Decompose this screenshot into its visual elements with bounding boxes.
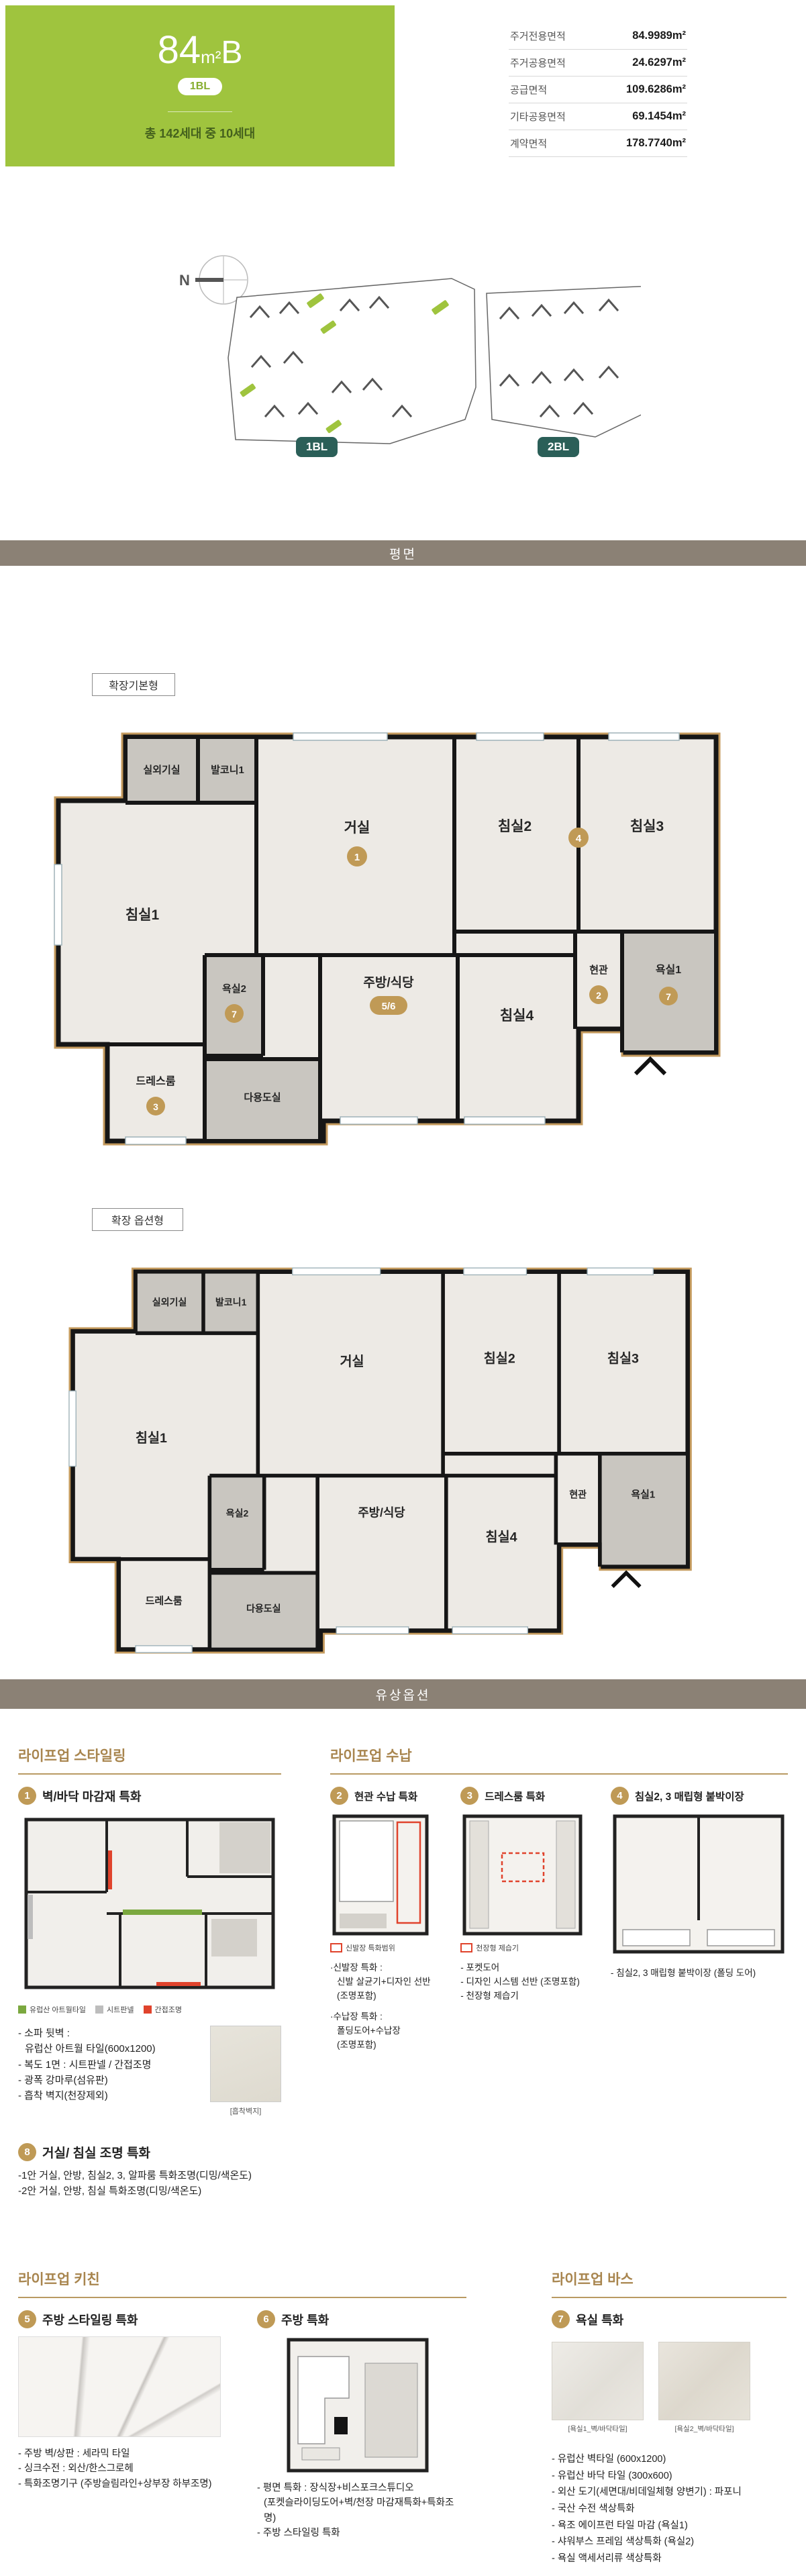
block-badge: 1BL (178, 78, 222, 95)
bullet: - 특화조명기구 (주방슬림라인+상부장 하부조명) (18, 2477, 219, 2491)
item3-legend: 천장형 제습기 (460, 1942, 592, 1953)
item5-head: 5 주방 스타일링 특화 (18, 2310, 219, 2328)
bullet: ·수납장 특화 : (330, 2010, 442, 2024)
unit-size-unit: m² (201, 47, 221, 67)
item5-title: 주방 스타일링 특화 (42, 2311, 138, 2328)
room-label-bed3: 침실3 (607, 1351, 639, 1366)
unit-size-number: 84 (158, 28, 201, 72)
unit-type-card: 84m²B 1BL 총 142세대 중 10세대 (5, 5, 395, 166)
badge-kitchen-num: 5/6 (382, 1001, 396, 1012)
item5-bullets: - 주방 벽/상판 : 세라믹 타일 - 싱크수전 : 외산/한스그로헤 - 특… (18, 2446, 219, 2491)
kitchen-header: 라이프업 키친 (18, 2269, 466, 2289)
site-plan: N (164, 218, 641, 466)
bullet: - 흡착 벽지(천장제외) (18, 2088, 202, 2103)
area-value: 24.6297m² (632, 56, 686, 69)
brochure-page: 84m²B 1BL 총 142세대 중 10세대 주거전용면적 84.9989m… (0, 0, 806, 2576)
legend-artwall-label: 유럽산 아트월타일 (30, 2004, 86, 2015)
section-bar-paid-options-label: 유상옵션 (376, 1685, 431, 1703)
room-label-bed3: 침실3 (630, 819, 664, 834)
bullet: 신발 살균기+디자인 선반 (330, 1975, 442, 1989)
item2-legend-label: 신발장 특화범위 (346, 1942, 395, 1953)
item8-number-badge: 8 (18, 2143, 36, 2161)
bullet: - 욕실 액세서리류 색상특화 (552, 2550, 787, 2567)
badge-bath2-num: 7 (232, 1009, 237, 1020)
stove (334, 2417, 348, 2434)
item2-head: 2 현관 수납 특화 (330, 1787, 442, 1805)
bullet: - 유럽산 바닥 타일 (300x600) (552, 2468, 787, 2485)
item8-lines: -1안 거실, 안방, 침실2, 3, 알파룸 특화조명(디밍/색온도) -2안… (18, 2168, 367, 2199)
room-label-bed4: 침실4 (500, 1008, 534, 1024)
badge-entrance-num: 2 (596, 990, 601, 1001)
legend-indirectlight-label: 간접조명 (155, 2004, 182, 2015)
wallpaper-swatch-image (210, 2026, 281, 2102)
storage-header: 라이프업 수납 (330, 1745, 788, 1765)
closet-left (623, 1930, 690, 1946)
area-value: 84.9989m² (632, 30, 686, 42)
area-value: 69.1454m² (632, 110, 686, 123)
section-bar-paid-options: 유상옵션 (0, 1679, 806, 1709)
bullet: 유럽산 아트월 타일(600x1200) (18, 2041, 202, 2057)
room-label-outdoor-unit: 실외기실 (143, 764, 180, 776)
bullet: ·신발장 특화 : (330, 1961, 442, 1975)
storage-item2-card: 2 현관 수납 특화 신발장 특화범위 ·신발장 특화 : 신발 살균기+디자인… (330, 1787, 442, 2052)
red-range-icon (330, 1943, 342, 1952)
storage-item4-card: 4 침실2, 3 매립형 붙박이장 - 침실2, 3 매립형 붙박이장 (폴딩 … (611, 1787, 788, 1981)
badge-bath1-num: 7 (666, 991, 671, 1002)
area-label: 계약면적 (510, 136, 547, 150)
indirect-light-highlight (108, 1850, 112, 1889)
entry-arrow (613, 1573, 640, 1587)
entrance-storage-image (330, 1813, 431, 1937)
item3-title: 드레스룸 특화 (485, 1789, 545, 1803)
room-label-entrance: 현관 (589, 964, 608, 976)
room-label-dress: 드레스룸 (146, 1595, 183, 1607)
item7-title: 욕실 특화 (576, 2311, 623, 2328)
item6-number-badge: 6 (257, 2310, 275, 2328)
item3-legend-label: 천장형 제습기 (476, 1942, 519, 1953)
item3-number-badge: 3 (460, 1787, 478, 1805)
bullet: - 주방 벽/상판 : 세라믹 타일 (18, 2446, 219, 2461)
room-label-entrance: 현관 (569, 1489, 587, 1499)
item2-number-badge: 2 (330, 1787, 348, 1805)
item5-number-badge: 5 (18, 2310, 36, 2328)
area-value: 109.6286m² (626, 83, 686, 96)
bullet: (조명포함) (330, 1989, 442, 2003)
item7-bullets: - 유럽산 벽타일 (600x1200) - 유럽산 바닥 타일 (300x60… (552, 2451, 787, 2567)
bullet: - 침실2, 3 매립형 붙박이장 (폴딩 도어) (611, 1967, 788, 1981)
item3-bullets: - 포켓도어 - 디자인 시스템 선반 (조명포함) - 천장형 제습기 (460, 1961, 592, 2003)
lifeup-styling-section: 라이프업 스타일링 1 벽/바닥 마감재 특화 유럽산 아트월타일 시트판넬 (18, 1745, 281, 2199)
area-label: 기타공용면적 (510, 109, 566, 123)
styling-plan-image (18, 1813, 281, 1995)
indirect-light-highlight2 (156, 1982, 201, 1986)
room-label-bed2: 침실2 (498, 819, 532, 834)
room-label-bed4: 침실4 (486, 1530, 517, 1545)
legend-sheetpanel-label: 시트판넬 (107, 2004, 134, 2015)
item3-head: 3 드레스룸 특화 (460, 1787, 592, 1805)
hero-divider (168, 111, 232, 112)
lifeup-storage-section: 라이프업 수납 2 현관 수납 특화 신발장 특화범위 (330, 1745, 788, 2052)
bath1-tile-figure: [욕실1_벽/바닥타일] (552, 2342, 644, 2434)
bullet: - 포켓도어 (460, 1961, 592, 1975)
area-label: 주거공용면적 (510, 56, 566, 70)
bullet: - 국산 수전 색상특화 (552, 2501, 787, 2518)
entry-arrow (636, 1059, 665, 1074)
room-label-kitchen: 주방/식당 (358, 1505, 405, 1519)
legend-artwall: 유럽산 아트월타일 (18, 2004, 86, 2015)
bullet: 폴딩도어+수납장 (330, 2024, 442, 2038)
bullet: - 소파 뒷벽 : (18, 2026, 202, 2041)
dressroom-image (460, 1813, 585, 1937)
kitchen-item5-card: 5 주방 스타일링 특화 - 주방 벽/상판 : 세라믹 타일 - 싱크수전 :… (18, 2310, 219, 2491)
item4-title: 침실2, 3 매립형 붙박이장 (635, 1789, 744, 1803)
room-label-utility: 다용도실 (244, 1092, 281, 1103)
legend-sheetpanel: 시트판넬 (95, 2004, 134, 2015)
site-plan-map: N (164, 218, 641, 460)
red-range-icon (460, 1943, 472, 1952)
plan-b-label: 확장 옵션형 (92, 1208, 183, 1231)
floor-plan-extended-option: 실외기실 발코니1 침실1 거실 침실2 침실3 욕실1 현관 주방/식당 침실… (57, 1240, 735, 1658)
item4-bullets: - 침실2, 3 매립형 붙박이장 (폴딩 도어) (611, 1967, 788, 1981)
badge-dress-num: 3 (153, 1101, 158, 1112)
bath2-tile-figure: [욕실2_벽/바닥타일] (658, 2342, 750, 2434)
item6-title: 주방 특화 (281, 2311, 329, 2328)
bullet: - 평면 특화 : 장식장+비스포크스튜디오 (257, 2481, 458, 2495)
bath2-tile-caption: [욕실2_벽/바닥타일] (658, 2424, 750, 2434)
sheet-panel-highlight (28, 1895, 33, 1939)
unit-size-title: 84m²B (158, 31, 243, 70)
item1-head: 1 벽/바닥 마감재 특화 (18, 1787, 281, 1805)
room-label-outdoor-unit: 실외기실 (152, 1297, 187, 1307)
builtin-closet-image (611, 1813, 787, 1957)
storage-header-rule (330, 1773, 788, 1775)
legend-artwall-swatch (18, 2005, 26, 2014)
artwall-tile-highlight (123, 1910, 202, 1915)
bath1-tile-caption: [욕실1_벽/바닥타일] (552, 2424, 644, 2434)
bullet: - 복도 1면 : 시트판넬 / 간접조명 (18, 2057, 202, 2073)
area-label: 공급면적 (510, 83, 547, 97)
styling-detail: - 소파 뒷벽 : 유럽산 아트월 타일(600x1200) - 복도 1면 :… (18, 2026, 281, 2116)
kitchen-header-rule (18, 2297, 466, 2298)
bath2-tile-image (658, 2342, 750, 2420)
styling-header-rule (18, 1773, 281, 1775)
floor-plan-extended-basic: 실외기실 발코니1 침실1 거실 1 침실2 4 침실3 욕실1 7 현관 2 … (42, 703, 766, 1150)
room-label-bath1: 욕실1 (656, 964, 681, 976)
bullet: - 욕조 에이프런 타일 마감 (욕실1) (552, 2518, 787, 2534)
bath1-tile-image (552, 2342, 644, 2420)
table-row: 기타공용면적 69.1454m² (509, 103, 687, 130)
bullet: (포켓슬라이딩도어+벽/천장 마감재특화+특화조명) (257, 2495, 458, 2526)
item7-number-badge: 7 (552, 2310, 570, 2328)
room-label-utility: 다용도실 (246, 1603, 281, 1614)
floor-plan-b-svg: 실외기실 발코니1 침실1 거실 침실2 침실3 욕실1 현관 주방/식당 침실… (57, 1240, 735, 1654)
storage-item3-card: 3 드레스룸 특화 천장형 제습기 - 포켓도어 - 디자인 시스템 선반 (조… (460, 1787, 592, 2003)
bullet: - 외산 도기(세면대/비데일체형 양변기) : 파포니 (552, 2484, 787, 2501)
bullet: -1안 거실, 안방, 침실2, 3, 알파룸 특화조명(디밍/색온도) (18, 2168, 367, 2183)
table-row: 공급면적 109.6286m² (509, 77, 687, 103)
bath-swatches: [욕실1_벽/바닥타일] [욕실2_벽/바닥타일] (552, 2342, 787, 2434)
room-label-living: 거실 (344, 820, 370, 836)
item2-details: ·신발장 특화 : 신발 살균기+디자인 선반 (조명포함) ·수납장 특화 :… (330, 1961, 442, 2052)
table-row: 주거공용면적 24.6297m² (509, 50, 687, 77)
styling-bullets: - 소파 뒷벽 : 유럽산 아트월 타일(600x1200) - 복도 1면 :… (18, 2026, 202, 2116)
floor-plan-a-svg: 실외기실 발코니1 침실1 거실 1 침실2 4 침실3 욕실1 7 현관 2 … (42, 703, 766, 1146)
closet-right (707, 1930, 774, 1946)
room-label-bath1: 욕실1 (631, 1489, 655, 1500)
styling-legend: 유럽산 아트월타일 시트판넬 간접조명 (18, 2004, 281, 2015)
room-label-bed1: 침실1 (125, 907, 160, 923)
item8-head: 8 거실/ 침실 조명 특화 (18, 2143, 281, 2161)
table-row: 계약면적 178.7740m² (509, 130, 687, 157)
wallpaper-swatch-figure: [흡착벽지] (210, 2026, 281, 2116)
bullet: (조명포함) (330, 2038, 442, 2052)
item8-title: 거실/ 침실 조명 특화 (42, 2143, 150, 2161)
legend-indirectlight: 간접조명 (144, 2004, 182, 2015)
bullet: -2안 거실, 안방, 침실 특화조명(디밍/색온도) (18, 2183, 367, 2199)
area-label: 주거전용면적 (510, 29, 566, 43)
area-value: 178.7740m² (626, 137, 686, 150)
room-label-bath2: 욕실2 (222, 983, 246, 995)
item7-head: 7 욕실 특화 (552, 2310, 787, 2328)
room-label-living: 거실 (340, 1354, 364, 1369)
styling-header: 라이프업 스타일링 (18, 1745, 281, 1765)
bullet: - 싱크수전 : 외산/한스그로헤 (18, 2461, 219, 2476)
item1-title: 벽/바닥 마감재 특화 (42, 1787, 141, 1805)
lifeup-kitchen-section: 라이프업 키친 5 주방 스타일링 특화 - 주방 벽/상판 : 세라믹 타일 … (18, 2269, 466, 2541)
bullet: - 광폭 강마루(섬유판) (18, 2073, 202, 2088)
block1-badge: 1BL (296, 437, 338, 457)
item2-title: 현관 수납 특화 (354, 1789, 417, 1803)
kitchen-item6-card: 6 주방 특화 - 평면 특화 : 장식장+비스포크스튜디오 (포켓슬라이딩도어… (257, 2310, 458, 2541)
badge-living-num: 1 (354, 852, 360, 863)
room-label-bath2: 욕실2 (226, 1507, 249, 1518)
badge-bed23-num: 4 (576, 833, 582, 844)
room-label-balcony: 발코니1 (215, 1297, 247, 1307)
section-bar-plan: 평면 (0, 540, 806, 566)
block2-badge: 2BL (538, 437, 579, 457)
bath-header: 라이프업 바스 (552, 2269, 787, 2289)
item4-head: 4 침실2, 3 매립형 붙박이장 (611, 1787, 788, 1805)
unit-size-type: B (221, 35, 242, 70)
bullet: - 천장형 제습기 (460, 1989, 592, 2003)
room-label-balcony: 발코니1 (211, 764, 244, 776)
bullet: - 주방 스타일링 특화 (257, 2526, 458, 2540)
bullet: - 유럽산 벽타일 (600x1200) (552, 2451, 787, 2468)
item6-head: 6 주방 특화 (257, 2310, 458, 2328)
bullet: - 샤워부스 프레임 색상특화 (욕실2) (552, 2534, 787, 2550)
room-label-bed2: 침실2 (484, 1351, 515, 1366)
area-table: 주거전용면적 84.9989m² 주거공용면적 24.6297m² 공급면적 1… (509, 23, 687, 157)
item2-legend: 신발장 특화범위 (330, 1942, 442, 1953)
room-label-bed1: 침실1 (136, 1431, 167, 1446)
north-label: N (179, 272, 190, 289)
room-label-kitchen: 주방/식당 (363, 975, 414, 990)
legend-sheetpanel-swatch (95, 2005, 103, 2014)
bath-header-rule (552, 2297, 787, 2298)
lifeup-bath-section: 라이프업 바스 7 욕실 특화 [욕실1_벽/바닥타일] [욕실2_벽/바닥타일… (552, 2269, 787, 2567)
item6-bullets: - 평면 특화 : 장식장+비스포크스튜디오 (포켓슬라이딩도어+벽/천장 마감… (257, 2481, 458, 2541)
sink (302, 2448, 340, 2460)
plan-a-label: 확장기본형 (92, 673, 175, 696)
kitchen-plan-image (285, 2336, 431, 2474)
section-bar-plan-label: 평면 (389, 544, 417, 562)
bullet: - 디자인 시스템 선반 (조명포함) (460, 1975, 592, 1989)
wallpaper-swatch-caption: [흡착벽지] (210, 2106, 281, 2116)
room-label-dress: 드레스룸 (136, 1075, 176, 1087)
table-row: 주거전용면적 84.9989m² (509, 23, 687, 50)
ceramic-tile-photo (18, 2336, 221, 2437)
item1-number-badge: 1 (18, 1787, 36, 1805)
legend-indirectlight-swatch (144, 2005, 152, 2014)
item4-number-badge: 4 (611, 1787, 629, 1805)
household-count: 총 142세대 중 10세대 (145, 124, 255, 142)
